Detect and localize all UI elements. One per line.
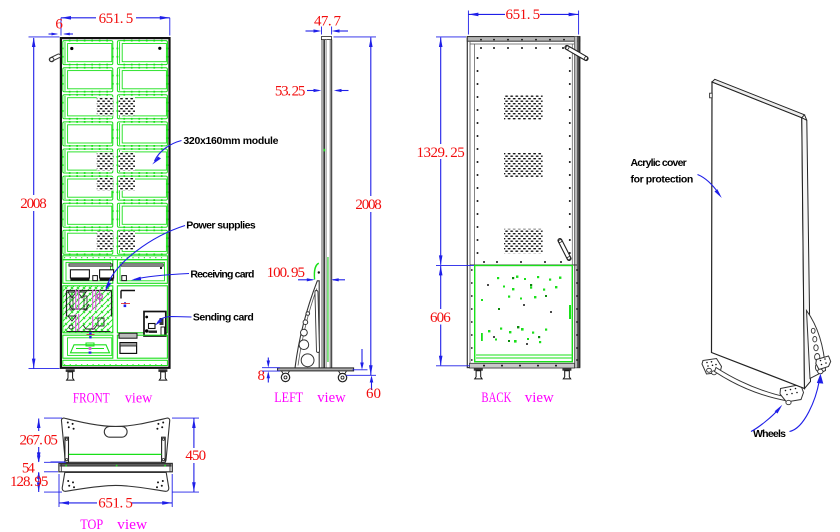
svg-text:651. 5: 651. 5 [506,7,541,23]
svg-text:651. 5: 651. 5 [99,11,134,27]
svg-text:view: view [125,390,153,406]
svg-text:LEFT: LEFT [274,390,303,406]
svg-text:53. 25: 53. 25 [275,83,306,99]
svg-text:Power supplies: Power supplies [186,220,256,232]
svg-text:Wheels: Wheels [753,428,786,440]
svg-text:8: 8 [258,368,266,384]
svg-text:view: view [525,390,554,406]
svg-text:view: view [117,517,147,532]
svg-text:47. 7: 47. 7 [314,14,342,30]
svg-text:Acrylic cover: Acrylic cover [631,157,687,169]
svg-text:6: 6 [55,16,63,32]
svg-text:Sending card: Sending card [193,311,254,323]
svg-text:651. 5: 651. 5 [98,496,133,512]
svg-text:267. 05: 267. 05 [20,432,58,448]
svg-text:Receiving card: Receiving card [190,268,254,280]
svg-text:606: 606 [430,310,451,326]
svg-text:TOP: TOP [80,517,103,532]
svg-text:for protection: for protection [631,173,694,185]
svg-text:320x160mm module: 320x160mm module [183,135,278,147]
svg-text:2008: 2008 [20,196,46,212]
svg-text:60: 60 [366,386,381,402]
svg-text:1329. 25: 1329. 25 [417,145,465,161]
svg-text:450: 450 [185,448,206,464]
svg-text:view: view [317,390,346,406]
svg-text:100. 95: 100. 95 [267,265,305,281]
svg-text:2008: 2008 [355,197,381,213]
svg-text:BACK: BACK [481,390,511,406]
svg-text:FRONT: FRONT [73,390,110,406]
svg-text:128. 95: 128. 95 [10,474,48,490]
